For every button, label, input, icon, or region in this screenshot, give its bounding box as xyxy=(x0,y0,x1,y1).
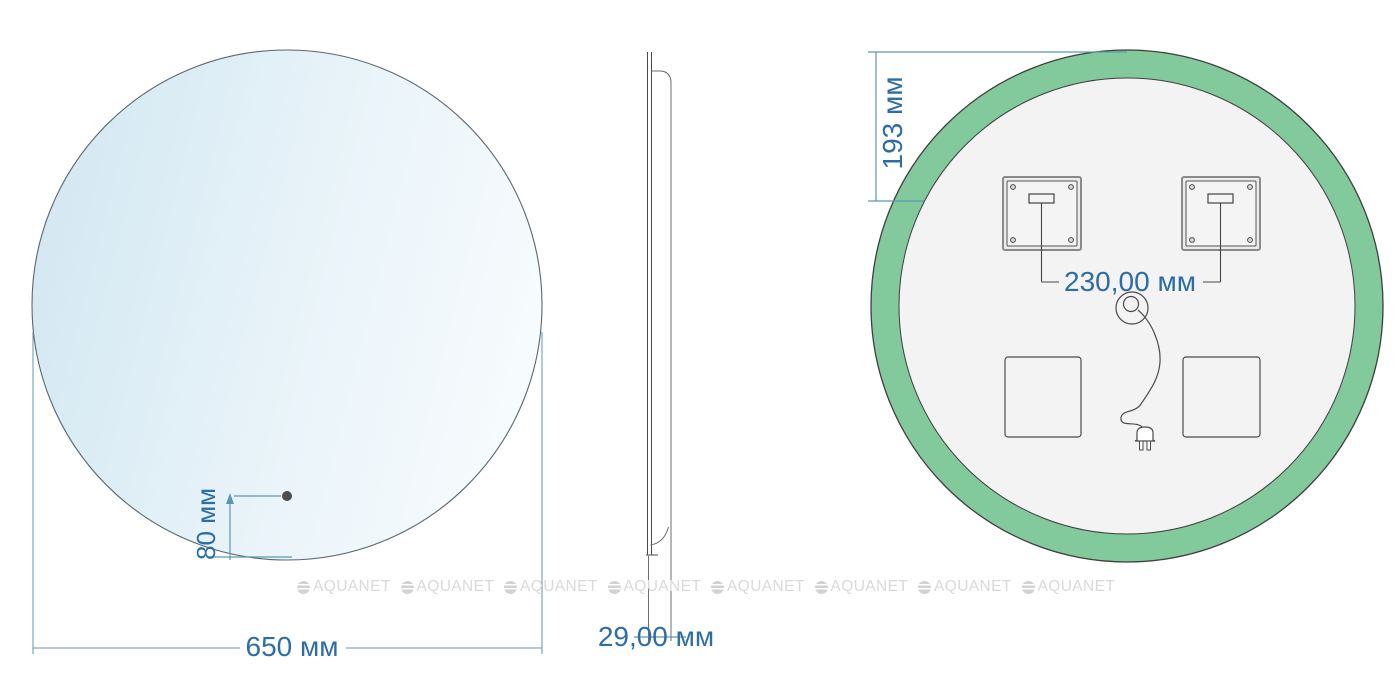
watermark-row: AQUANET AQUANET AQUANET AQUANET AQUANET … xyxy=(297,578,1137,596)
front-mirror-circle xyxy=(32,50,542,560)
keyhole-slot xyxy=(1208,194,1233,203)
aquanet-logo-icon xyxy=(297,581,310,594)
front-view xyxy=(32,50,542,654)
watermark: AQUANET xyxy=(815,578,919,596)
front-diameter-label: 650 мм xyxy=(192,632,392,662)
sensor-dot xyxy=(282,491,292,501)
side-depth-label: 29,00 мм xyxy=(576,622,736,652)
back-top-offset-label: 193 мм xyxy=(878,63,908,183)
aquanet-logo-icon xyxy=(608,581,621,594)
back-bracket-spacing-label: 230,00 мм xyxy=(1050,267,1210,297)
aquanet-logo-icon xyxy=(918,581,931,594)
back-panel xyxy=(899,78,1355,534)
watermark: AQUANET xyxy=(608,578,712,596)
side-view xyxy=(634,52,686,641)
watermark: AQUANET xyxy=(1022,578,1126,596)
back-view xyxy=(868,50,1383,562)
watermark: AQUANET xyxy=(504,578,608,596)
watermark: AQUANET xyxy=(401,578,505,596)
watermark: AQUANET xyxy=(711,578,815,596)
keyhole-slot xyxy=(1029,194,1054,203)
side-glass-edge xyxy=(646,52,658,555)
aquanet-logo-icon xyxy=(504,581,517,594)
watermark: AQUANET xyxy=(297,578,401,596)
back-pad-right xyxy=(1183,357,1260,437)
back-pad-left xyxy=(1005,357,1081,437)
mirror-dimension-drawing: 650 мм 80 мм 29,00 мм 193 мм 230,00 мм A… xyxy=(0,0,1400,677)
aquanet-logo-icon xyxy=(1022,581,1035,594)
aquanet-logo-icon xyxy=(401,581,414,594)
aquanet-logo-icon xyxy=(711,581,724,594)
front-sensor-offset-label: 80 мм xyxy=(191,469,221,579)
watermark: AQUANET xyxy=(918,578,1022,596)
aquanet-logo-icon xyxy=(815,581,828,594)
